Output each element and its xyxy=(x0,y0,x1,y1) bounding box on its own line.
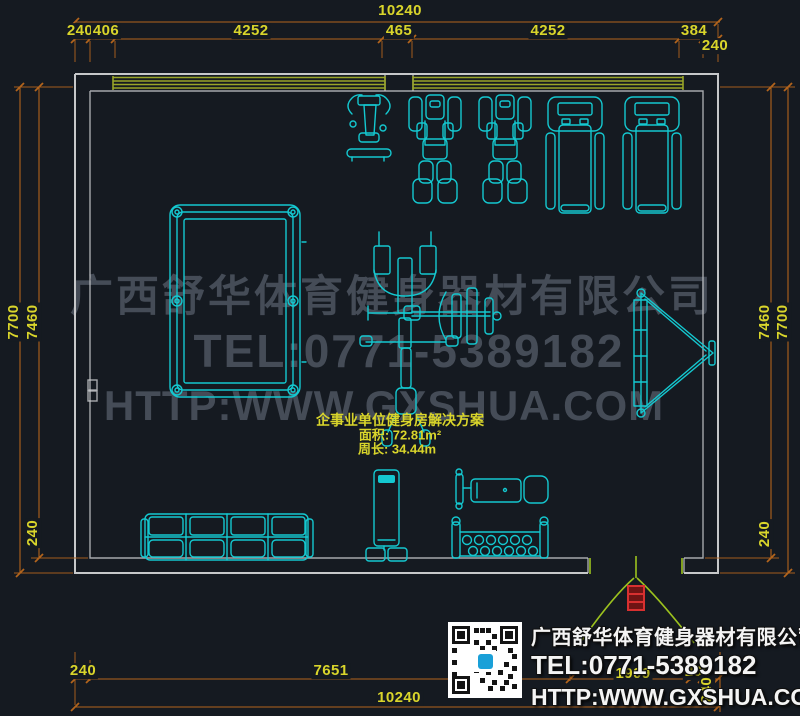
floor-plan-drawing xyxy=(0,0,800,716)
dim-left-bottom: 240 xyxy=(25,518,41,548)
qr-code xyxy=(448,622,522,698)
qr-module-pattern xyxy=(474,628,479,633)
strength-machine-icon xyxy=(479,95,531,203)
dim-bottom-segment: 7651 xyxy=(312,663,351,679)
strength-machine-icon xyxy=(409,95,461,203)
dim-right-bottom: 240 xyxy=(757,519,773,549)
dim-top-segment: 465 xyxy=(384,23,414,39)
treadmill-icon xyxy=(546,97,604,213)
dim-top-total: 10240 xyxy=(376,3,424,19)
walls xyxy=(75,74,718,573)
weight-bench-icon xyxy=(456,469,548,509)
dim-top-segment: 4252 xyxy=(232,23,271,39)
qr-finder-icon xyxy=(452,626,470,644)
dim-bottom-total: 10240 xyxy=(375,690,423,706)
qr-finder-icon xyxy=(500,626,518,644)
info-url: HTTP:WWW.GXSHUA.COM xyxy=(531,684,800,711)
info-tel: TEL:0771-5389182 xyxy=(531,650,756,681)
dim-left-outer: 7700 xyxy=(6,303,22,342)
info-company: 广西舒华体育健身器材有限公司 xyxy=(531,621,800,650)
dim-right-outer: 7700 xyxy=(775,303,791,342)
dim-left-inner: 7460 xyxy=(25,303,41,342)
pool-table-icon xyxy=(170,205,306,397)
four-seat-sofa-icon xyxy=(141,514,313,560)
dumbbell-rack-icon xyxy=(452,517,548,558)
dim-bottom-segment: 240 xyxy=(68,663,98,679)
door-marker-icon xyxy=(628,586,644,610)
dim-top-segment: 240 xyxy=(700,38,730,54)
dimension-lines xyxy=(14,18,795,712)
water-dispenser-icon xyxy=(366,470,407,561)
dim-right-inner: 7460 xyxy=(757,303,773,342)
window-band xyxy=(113,76,683,90)
cad-viewport[interactable]: 广西舒华体育健身器材有限公司 TEL:0771-5389182 HTTP:WWW… xyxy=(0,0,800,716)
exercise-bike-icon xyxy=(347,95,391,161)
dim-top-segment: 4252 xyxy=(529,23,568,39)
qr-center-logo-icon xyxy=(474,650,496,672)
treadmill-icon xyxy=(623,97,681,213)
dim-top-segment: 406 xyxy=(91,23,121,39)
qr-finder-icon xyxy=(452,676,470,694)
plan-perimeter-label: 周长: 34.44m xyxy=(358,439,436,458)
